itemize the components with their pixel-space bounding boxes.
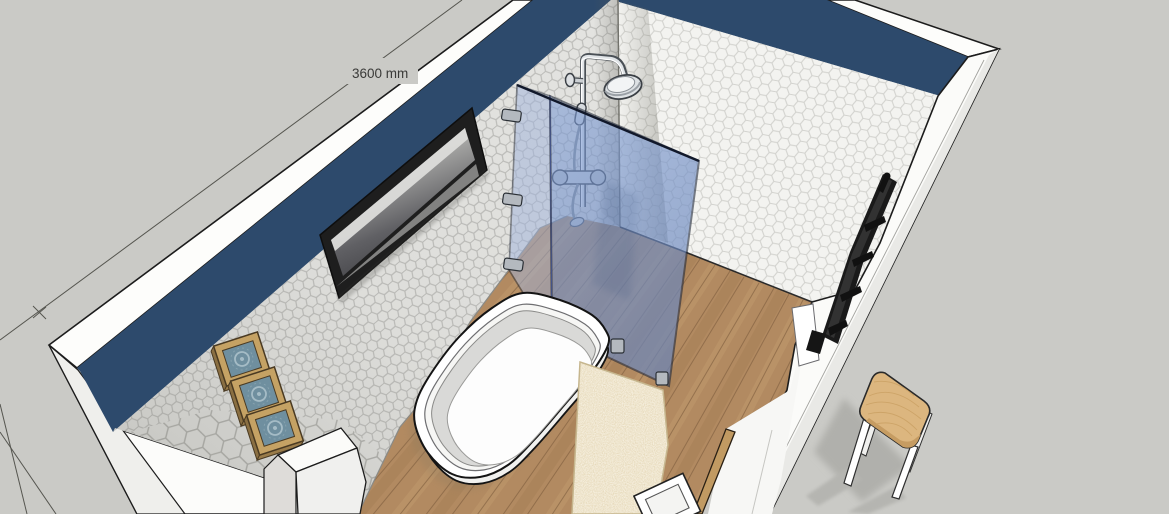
svg-text:3600 mm: 3600 mm xyxy=(352,66,408,81)
